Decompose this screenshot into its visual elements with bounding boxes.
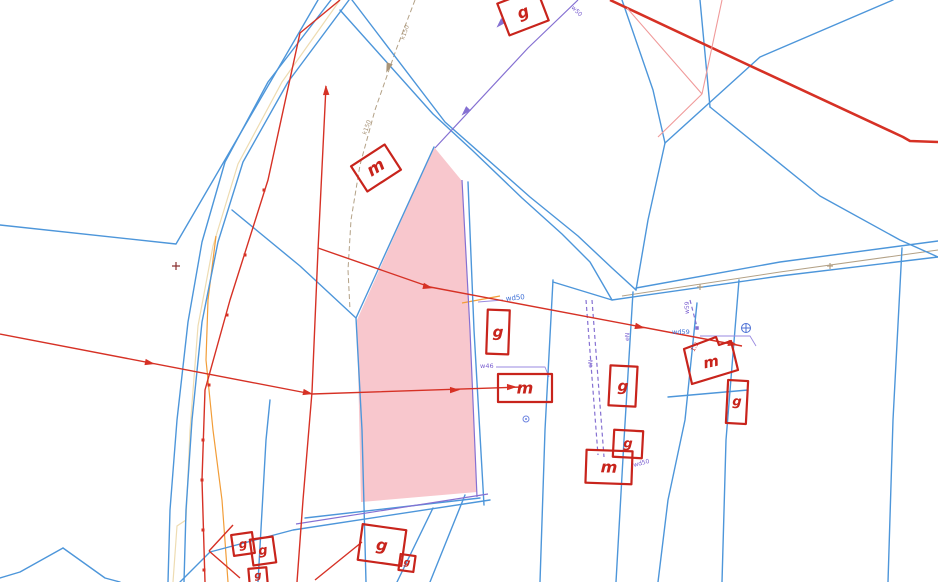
- building-symbol-g[interactable]: g: [486, 310, 510, 355]
- circle-plus-icon: [742, 324, 751, 333]
- building-symbol-g[interactable]: g: [613, 430, 643, 458]
- boundary-line: [636, 143, 665, 290]
- pole-marker-icon: [201, 479, 204, 482]
- building-use-letter: g: [514, 1, 532, 23]
- survey-line: [627, 0, 722, 137]
- survey-line: [315, 542, 362, 580]
- pole-marker-icon: [226, 314, 229, 317]
- boundary-line: [722, 280, 739, 582]
- label-leader-line: [496, 367, 549, 377]
- boundary-line: [553, 257, 938, 300]
- building-use-letter: g: [257, 543, 268, 559]
- pole-marker-icon: [244, 254, 247, 257]
- building-symbol-g[interactable]: g: [497, 0, 548, 35]
- pole-marker-icon: [263, 189, 266, 192]
- cadastral-map-canvas[interactable]: mggmggmmgggggg wd50w46wd59w59eNeNwd50k15…: [0, 0, 938, 582]
- boundary-line: [340, 10, 612, 300]
- boundary-line: [0, 0, 318, 244]
- utility-label: wd50: [505, 293, 525, 303]
- utility-label: eN: [624, 333, 631, 342]
- building-use-letter: m: [517, 379, 534, 398]
- building-use-letter: g: [617, 377, 629, 396]
- utility-line: [586, 300, 598, 455]
- pole-marker-icon: [202, 529, 205, 532]
- building-use-letter: m: [701, 352, 720, 373]
- pole-marker-icon: [208, 384, 211, 387]
- boundary-line: [636, 241, 938, 288]
- building-use-letter: g: [403, 558, 411, 569]
- building-use-letter: g: [492, 323, 504, 341]
- selected-parcel-highlight[interactable]: [357, 147, 477, 502]
- symbols-layer: [144, 18, 833, 571]
- utility-label: wd59: [672, 328, 690, 336]
- building-use-letter: g: [732, 394, 742, 409]
- boundary-line: [168, 0, 331, 582]
- survey-line: [202, 0, 340, 582]
- utility-label: k150: [399, 24, 411, 41]
- utility-label: k150: [361, 119, 373, 136]
- utility-label: w50: [570, 4, 584, 18]
- boundary-line: [658, 303, 697, 582]
- utility-line: [592, 300, 604, 457]
- boundary-line: [232, 210, 356, 318]
- building-use-letter: m: [363, 155, 389, 181]
- survey-line: [610, 0, 938, 142]
- cream-utility-lines: [173, 0, 340, 582]
- pole-marker-icon: [203, 569, 206, 572]
- utility-label: w46: [480, 362, 494, 370]
- direction-arrow-icon: [323, 85, 330, 95]
- building-use-letter: g: [254, 570, 262, 582]
- boundary-line: [700, 0, 710, 107]
- boundary-line: [710, 107, 938, 257]
- pole-marker-icon: [695, 326, 699, 330]
- boundary-line: [665, 0, 893, 143]
- building-symbol-g[interactable]: g: [608, 365, 637, 406]
- building-symbol-g[interactable]: g: [248, 567, 267, 582]
- building-use-letter: g: [238, 536, 249, 551]
- direction-arrow-icon: [507, 384, 517, 391]
- utility-line: [435, 0, 578, 148]
- pole-marker-icon: [202, 439, 205, 442]
- survey-line: [297, 86, 326, 582]
- utility-label: w59: [684, 301, 691, 314]
- cross-marker-icon: [827, 263, 833, 269]
- building-use-letter: g: [375, 535, 389, 555]
- utility-line: [173, 0, 340, 582]
- red-survey-lines: [0, 0, 938, 582]
- building-use-letter: g: [623, 436, 633, 451]
- building-symbol-m[interactable]: m: [585, 450, 632, 485]
- boundary-line: [540, 280, 553, 582]
- boundary-line: [63, 548, 120, 582]
- boundary-line: [888, 248, 902, 582]
- map-viewport[interactable]: mggmggmmgggggg wd50w46wd59w59eNeNwd50k15…: [0, 0, 938, 582]
- boundary-line: [0, 548, 63, 578]
- building-symbol-m[interactable]: m: [351, 145, 401, 192]
- utility-label: eN: [587, 359, 595, 368]
- utility-label: wd50: [633, 458, 651, 469]
- cross-marker-icon: [172, 262, 180, 270]
- building-use-letter: m: [600, 457, 617, 477]
- circle-dot-icon: [523, 416, 529, 422]
- utility-line: [622, 250, 938, 296]
